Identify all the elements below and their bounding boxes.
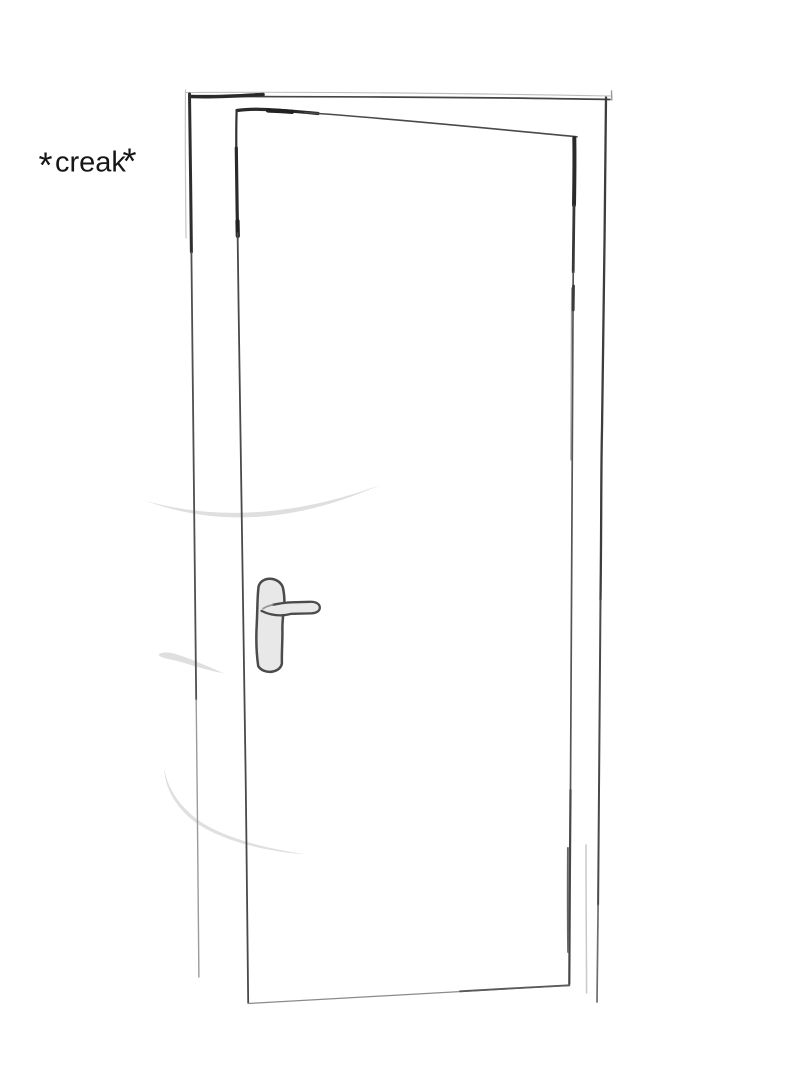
svg-text:creak: creak (55, 147, 126, 179)
svg-text:*: * (39, 145, 53, 186)
svg-text:*: * (123, 141, 137, 182)
